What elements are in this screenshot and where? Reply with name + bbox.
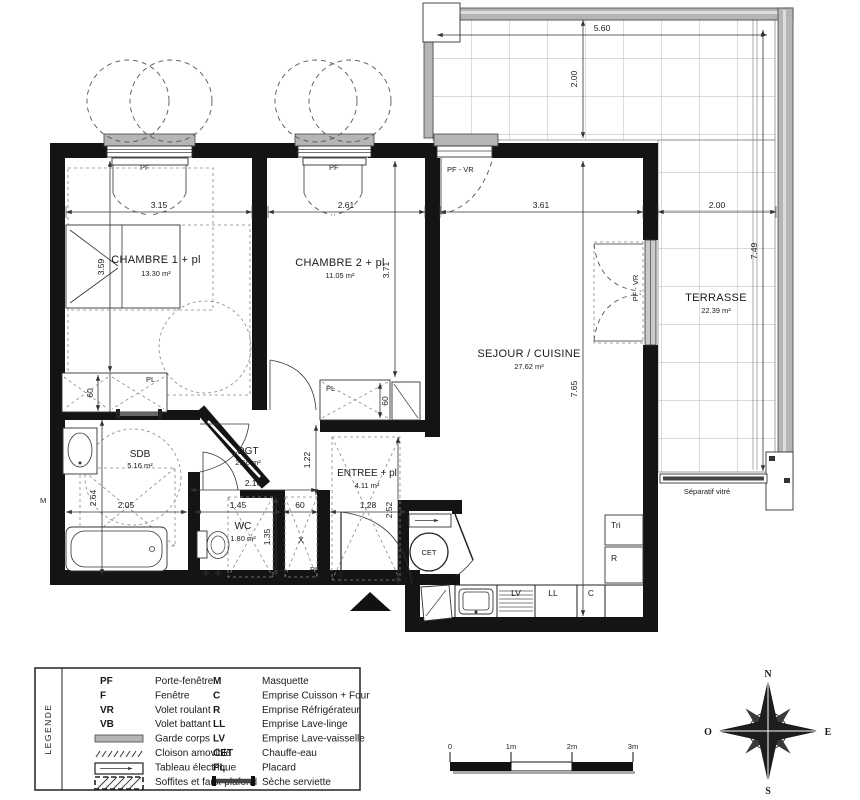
legend-abbr: R xyxy=(213,705,221,716)
dim: 1.22 xyxy=(302,451,312,468)
room-area-sejour: 27.62 m² xyxy=(514,362,544,371)
dim: 3.59 xyxy=(96,258,106,275)
legend-label: Emprise Lave-vaisselle xyxy=(262,734,365,745)
masquette-label: M xyxy=(40,496,46,505)
kitchen-counter: LV LL C Tri R xyxy=(455,515,643,617)
placard-label: PL xyxy=(326,384,335,393)
room-area-chambre1: 13.30 m² xyxy=(141,269,171,278)
legend-label: Volet roulant xyxy=(155,705,211,716)
legend-abbr: LL xyxy=(213,719,225,730)
dim: 60 xyxy=(295,500,305,510)
dim: 2.52 xyxy=(384,501,394,518)
room-area-wc: 1.80 m² xyxy=(230,534,256,543)
legend-box: LEGENDE PF F VR VB Porte-fenêtre Fenêtre… xyxy=(35,668,370,790)
floor-plan-drawing: Séparatif vitré TERRASSE 22.39 m² xyxy=(0,0,860,800)
placard-label: PL xyxy=(310,565,319,574)
scale-tick: 0 xyxy=(448,742,452,751)
terrace: Séparatif vitré TERRASSE 22.39 m² xyxy=(423,3,793,510)
dim: 1.35 xyxy=(262,528,272,545)
legend-label: Garde corps xyxy=(155,734,210,745)
legend-abbr: PF xyxy=(100,676,113,687)
compass-south: S xyxy=(765,786,771,797)
entrance-marker-triangle xyxy=(350,592,391,611)
legend-abbr: LV xyxy=(213,734,225,745)
volet-swing-arc xyxy=(87,60,169,142)
scale-tick: 2m xyxy=(567,742,577,751)
dim: 5.60 xyxy=(594,23,611,33)
dim: 7.65 xyxy=(569,380,579,397)
door-pf-vr-north: PF - VR xyxy=(434,134,498,214)
open-door-leaf xyxy=(421,585,452,621)
separatif-vitre-label: Séparatif vitré xyxy=(684,487,730,496)
room-label-terrasse: TERRASSE xyxy=(685,292,747,304)
room-area-sdb: 5.16 m² xyxy=(127,461,153,470)
scale-bar: 0 1m 2m 3m xyxy=(448,742,638,774)
room-label-sejour: SEJOUR / CUISINE xyxy=(477,348,580,360)
legend-label: Emprise Cuisson + Four xyxy=(262,690,370,701)
room-label-chambre2: CHAMBRE 2 + pl xyxy=(295,257,384,269)
dim: 3.71 xyxy=(381,261,391,278)
dim: 3.15 xyxy=(151,200,168,210)
room-area-dgt: 2.56 m² xyxy=(235,458,261,467)
floor-plan-page: Séparatif vitré TERRASSE 22.39 m² xyxy=(0,0,860,800)
door-pf-vr-east: PF - VR xyxy=(594,240,656,345)
garde-corps-left xyxy=(424,42,433,138)
dim: 1.28 xyxy=(360,500,377,510)
dim: 2.00 xyxy=(569,70,579,87)
scale-tick: 1m xyxy=(506,742,516,751)
compass-west: O xyxy=(704,727,712,738)
dim: 2.61 xyxy=(338,200,355,210)
legend-label: Emprise Lave-linge xyxy=(262,719,348,730)
window-label: PF xyxy=(140,163,150,172)
terrace-pillar xyxy=(423,3,460,42)
dim: 2.64 xyxy=(88,489,98,506)
legend-abbr: M xyxy=(213,676,221,687)
dim: 2.16 xyxy=(245,478,262,488)
dim: 2.00 xyxy=(709,200,726,210)
dim: 60 xyxy=(380,396,390,406)
legend-label: Emprise Réfrigérateur xyxy=(262,705,360,716)
placard-label: PL xyxy=(146,375,155,384)
r-label: R xyxy=(611,553,617,563)
volet-swing-arc xyxy=(275,60,357,142)
volet-swing-arc xyxy=(130,60,212,142)
legend-label: Chauffe-eau xyxy=(262,748,317,759)
legend-label: Porte-fenêtre xyxy=(155,676,214,687)
dim: 7.49 xyxy=(749,242,759,259)
room-area-entree: 4.11 m² xyxy=(355,481,380,490)
volet-swing-arc xyxy=(309,60,391,142)
compass-north: N xyxy=(764,669,772,680)
room-label-sdb: SDB xyxy=(130,449,151,460)
cet-label: CET xyxy=(422,548,437,557)
legend-title: LEGENDE xyxy=(43,703,53,754)
c-label: C xyxy=(588,588,594,598)
dim: 2.05 xyxy=(118,500,135,510)
legend-label: Fenêtre xyxy=(155,690,190,701)
turning-circle xyxy=(159,301,251,393)
room-area-terrasse: 22.39 m² xyxy=(701,306,731,315)
room-label-entree: ENTREE + pl xyxy=(337,468,397,479)
window-pf-chambre2: PF xyxy=(275,60,391,215)
turning-circle xyxy=(85,429,181,525)
terrace-tile-grid xyxy=(433,20,775,140)
legend-label: Volet battant xyxy=(155,719,211,730)
legend-abbr: CET xyxy=(213,748,233,759)
door-arc-wc xyxy=(203,452,238,490)
scale-tick: 3m xyxy=(628,742,638,751)
dim: 60 xyxy=(85,388,95,398)
legend-label: Masquette xyxy=(262,676,309,687)
legend-abbr: F xyxy=(100,690,106,701)
legend-abbr: VB xyxy=(100,719,114,730)
door-arc-chambre2 xyxy=(270,360,316,410)
bathtub xyxy=(66,527,167,571)
compass-rose: N S O E xyxy=(704,669,832,797)
room-label-dgt: DGT xyxy=(237,446,258,457)
garde-corps-symbol xyxy=(95,735,143,742)
ll-label: LL xyxy=(548,588,558,598)
legend-abbr: VR xyxy=(100,705,115,716)
placard-chambre2: PL xyxy=(320,380,420,420)
shaft-x-label: X xyxy=(298,535,304,545)
tri-label: Tri xyxy=(611,520,621,530)
room-label-wc: WC xyxy=(235,521,252,532)
window-label: PF xyxy=(329,163,339,172)
legend-abbr: C xyxy=(213,690,220,701)
window-pf-chambre1: PF xyxy=(87,60,212,215)
dim: 3.61 xyxy=(533,200,550,210)
room-label-chambre1: CHAMBRE 1 + pl xyxy=(111,254,200,266)
door-label: PF - VR xyxy=(631,274,640,301)
legend-label: Placard xyxy=(262,762,296,773)
door-label: PF - VR xyxy=(447,165,474,174)
toilet xyxy=(197,531,207,558)
compass-east: E xyxy=(825,727,832,738)
room-area-chambre2: 11.05 m² xyxy=(325,271,355,280)
legend-label: Sèche serviette xyxy=(262,777,331,788)
dim: 1.45 xyxy=(230,500,247,510)
placard-chambre1: PL xyxy=(62,373,167,412)
lv-label: LV xyxy=(511,588,521,598)
bed xyxy=(66,225,180,308)
legend-abbr: PL xyxy=(213,762,226,773)
